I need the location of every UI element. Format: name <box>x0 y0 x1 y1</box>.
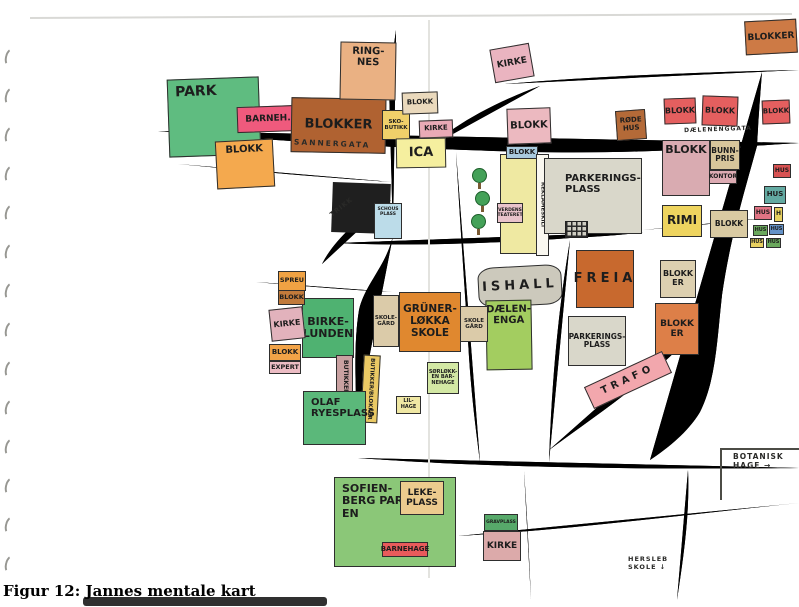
block-hus-6: HUS <box>769 224 784 235</box>
block-spreu: SPREU <box>278 271 306 291</box>
tree-icon <box>475 191 489 211</box>
block-hus-5: HUS <box>753 225 768 236</box>
block-kirke-w: KIRKE <box>268 306 305 341</box>
block-blokk-brown-w: BLOKK <box>278 290 305 305</box>
block-freia: FREIA <box>576 250 634 308</box>
block-label: HUS <box>755 228 767 234</box>
block-label: BLOKK <box>272 349 298 357</box>
block-label: SKOLE- GÅRD <box>375 315 397 327</box>
tree-icon <box>472 168 486 188</box>
block-olaf-ryes-plass: OLAF RYESPLASS <box>303 391 366 445</box>
block-skolegard-e: SKOLE GÅRD <box>460 306 488 342</box>
block-label: BLOKK <box>665 106 695 116</box>
block-label: H <box>776 211 781 218</box>
block-bunnpris: BUNN- PRIS <box>710 140 740 170</box>
block-label: HUS <box>767 191 784 199</box>
block-label: OLAF RYESPLASS <box>311 397 375 419</box>
block-label: PARK <box>175 84 217 101</box>
block-parkeringsplass-s: PARKERINGS- PLASS <box>568 316 626 366</box>
block-label: KIRKE <box>496 55 528 70</box>
block-blokk-r3: BLOKK <box>762 100 791 125</box>
block-sorlokken-barnehage: SØRLØKK- EN BAR- NEHAGE <box>427 362 459 394</box>
block-expert: EXPERT <box>269 361 301 374</box>
scanned-notebook-page: SCHOUS PLASSPARKBARNEH.BLOKKERRING- NESB… <box>0 0 799 607</box>
block-label: BLOKKER <box>304 118 372 134</box>
block-blokk-orange-w: BLOKK <box>269 344 301 361</box>
block-label: KIRKE <box>424 125 448 134</box>
block-label: SCHOUS PLASS <box>375 207 401 217</box>
block-label: BUNN- PRIS <box>711 147 738 164</box>
block-label: HUS <box>775 168 789 175</box>
block-label: PARKERINGS- PLASS <box>569 333 626 350</box>
block-label: SPREU <box>280 277 304 284</box>
tree-icon <box>471 214 485 234</box>
block-label: HUS <box>771 227 783 233</box>
block-label: RØDE HUS <box>620 116 643 133</box>
block-hus-1: HUS <box>773 164 791 178</box>
block-birkelunden: BIRKE- LUNDEN <box>302 298 354 358</box>
block-label: RIMI <box>667 214 697 227</box>
street-label-hersleb-skole: HERSLEB SKOLE ↓ <box>628 555 668 571</box>
block-dalenenga: DÆLEN- ENGA <box>485 300 532 371</box>
block-label: EXPERT <box>271 364 299 371</box>
block-label: FREIA <box>574 272 637 287</box>
block-label: VERDENS TEATERET <box>497 208 522 218</box>
block-blokk-big-e: BLOKK <box>662 140 710 196</box>
block-blokk-blue-header: BLOKK <box>506 146 538 159</box>
block-kontor: KONTOR <box>709 170 737 184</box>
block-ica: ICA <box>396 138 447 169</box>
block-rimi: RIMI <box>662 205 702 237</box>
block-hus-2: HUS <box>764 186 786 204</box>
block-blokk-r2: BLOKK <box>701 95 738 126</box>
block-blokk-tan-n: BLOKK <box>402 91 439 114</box>
block-schous-plass: SCHOUS PLASS <box>374 203 402 239</box>
block-label: LEKE- PLASS <box>406 488 438 508</box>
block-lil-hage: LIL- HAGE <box>396 396 421 414</box>
map-border-corner-line <box>720 448 799 450</box>
block-blokk-pink-n: BLOKK <box>506 107 551 145</box>
parking-grid-icon <box>565 221 588 238</box>
block-label: SØRLØKK- EN BAR- NEHAGE <box>429 370 457 387</box>
block-blokk-l-shape: BLOKK <box>710 210 748 238</box>
block-label: BLOKKER <box>747 31 794 44</box>
block-label: KIRKE <box>487 541 517 551</box>
block-label: BLOKK <box>665 144 706 156</box>
block-gravplass: GRAVPLASS <box>484 514 518 531</box>
block-label: BLOKK <box>705 106 735 116</box>
block-ringnes: RING- NES <box>339 42 396 101</box>
block-blokker-orange-e: BLOKK ER <box>655 303 699 355</box>
figure-caption: Figur 12: Jannes mentale kart <box>3 582 256 600</box>
block-label: BLOKK <box>763 108 790 117</box>
block-label: SKO- BUTIKK <box>385 119 408 131</box>
block-label: BLOKK <box>510 120 548 132</box>
block-label: BLOKK <box>225 143 263 156</box>
block-skolegard-w: SKOLE- GÅRD <box>373 295 399 347</box>
block-blokker-tan-e: BLOKK ER <box>660 260 696 298</box>
block-label: BARNEHAGE <box>381 546 430 554</box>
block-label: KIRKE <box>273 318 301 330</box>
block-label: KONTOR <box>709 174 737 181</box>
block-label: HUS <box>751 240 763 246</box>
block-label: BARNEH. <box>245 113 291 125</box>
block-label: ISHALL <box>482 277 558 295</box>
block-label: BLOKK <box>509 149 535 157</box>
block-hus-7: HUS <box>750 238 764 248</box>
block-rode-hus: RØDE HUS <box>615 109 647 141</box>
street-label-botanisk-hage: BOTANISK HAGE → <box>733 452 784 471</box>
block-parkeringsplass-n: PARKERINGS- PLASS <box>544 158 642 234</box>
block-verdens-teateret: VERDENS TEATERET <box>497 203 523 223</box>
block-label: ICA <box>409 146 434 161</box>
block-hus-4: H <box>774 207 783 222</box>
block-label: BUTIKKER <box>341 360 348 394</box>
block-blokk-w: BLOKK <box>215 139 275 190</box>
block-label: GRÜNER- LØKKA SKOLE <box>403 304 457 339</box>
block-label: PARKERINGS- PLASS <box>565 173 641 195</box>
block-label: DÆLEN- ENGA <box>486 304 531 327</box>
block-kirke-s: KIRKE <box>483 531 521 561</box>
block-grunerlokka-skole: GRÜNER- LØKKA SKOLE <box>399 292 461 352</box>
block-label: LIL- HAGE <box>401 399 417 410</box>
block-kirke-n1: KIRKE <box>419 119 454 138</box>
block-barnehage-s: BARNEHAGE <box>382 542 428 557</box>
map-border-corner-line <box>720 448 722 500</box>
block-hus-8: HUS <box>766 238 781 248</box>
block-blokk-r1: BLOKK <box>664 97 697 124</box>
block-label: SKOLE GÅRD <box>464 318 484 330</box>
block-kirke-n2: KIRKE <box>489 43 534 83</box>
block-label: GRAVPLASS <box>486 520 516 525</box>
block-lekeplass: LEKE- PLASS <box>400 481 444 515</box>
block-hus-3: HUS <box>754 206 772 220</box>
block-label: BLOKK ER <box>663 270 693 288</box>
block-label: RING- NES <box>352 46 385 69</box>
block-blokker-ne: BLOKKER <box>744 19 798 56</box>
block-label: BLOKK ER <box>660 319 694 339</box>
block-label: BLOKK <box>715 220 743 228</box>
block-label: BLOKK <box>407 99 434 108</box>
block-label: HUS <box>756 210 770 217</box>
block-label: HUS <box>768 240 780 246</box>
block-label: BLOKK <box>279 294 303 301</box>
block-label: BIRKE- LUNDEN <box>303 316 354 341</box>
